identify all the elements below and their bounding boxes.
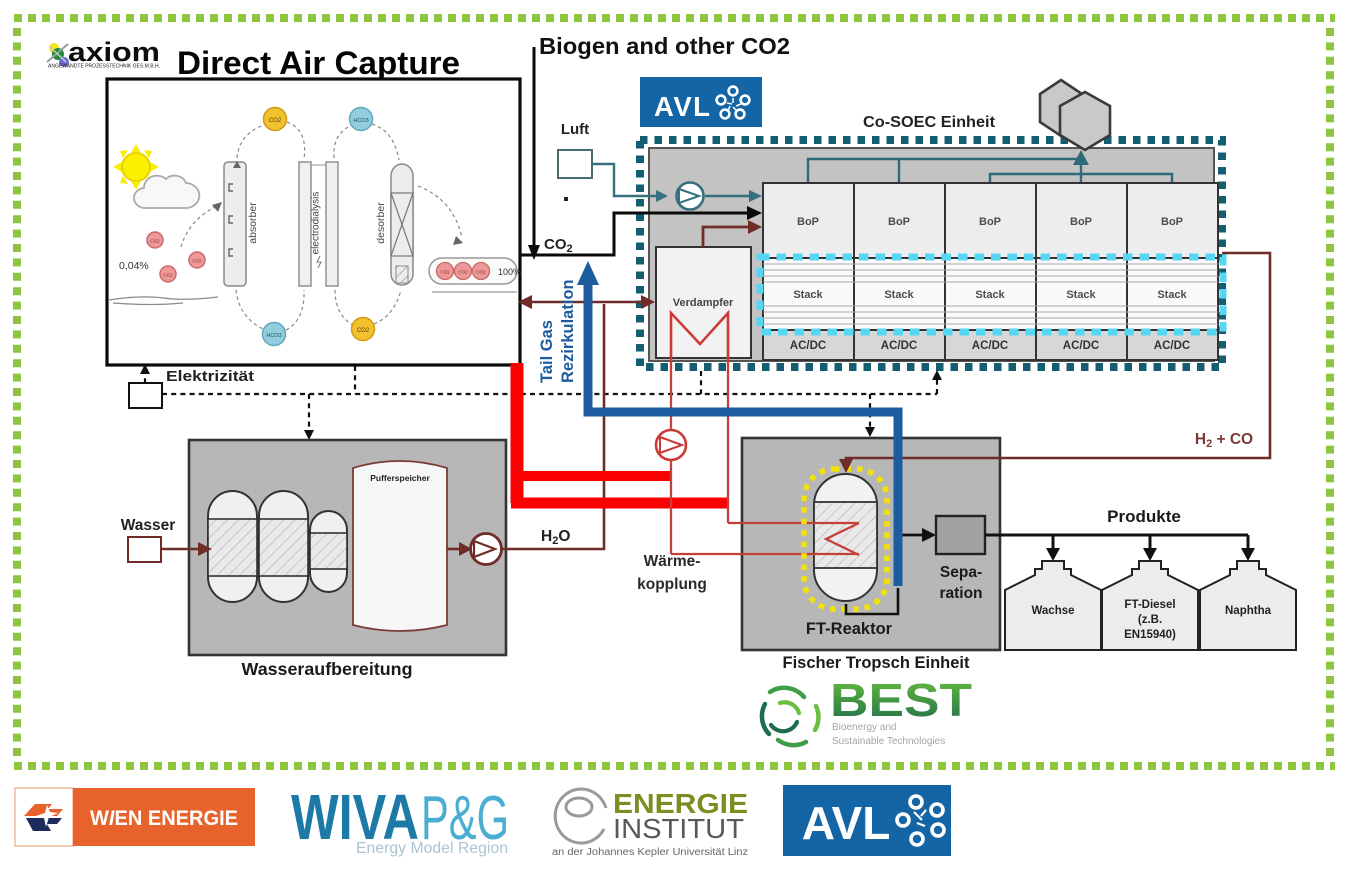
svg-text:INSTITUT: INSTITUT xyxy=(613,813,744,844)
svg-text:HCO3: HCO3 xyxy=(353,118,368,124)
svg-text:WIEN ENERGIE: WIEN ENERGIE xyxy=(90,807,238,830)
svg-text:ration: ration xyxy=(939,585,982,602)
svg-text:ANGEWANDTE PROZESSTECHNIK GES.: ANGEWANDTE PROZESSTECHNIK GES.M.B.H. xyxy=(48,64,160,70)
svg-text:CO2: CO2 xyxy=(269,118,282,124)
svg-text:Produkte: Produkte xyxy=(1107,507,1181,526)
svg-text:Stack: Stack xyxy=(1066,289,1096,301)
svg-text:Wasseraufbereitung: Wasseraufbereitung xyxy=(242,659,413,679)
svg-text:FT-Diesel: FT-Diesel xyxy=(1124,599,1175,611)
svg-text:Wärme-: Wärme- xyxy=(644,553,701,570)
svg-text:Naphtha: Naphtha xyxy=(1225,605,1272,617)
svg-text:CO2: CO2 xyxy=(163,273,173,278)
svg-text:BoP: BoP xyxy=(797,216,819,228)
svg-text:Energy Model Region: Energy Model Region xyxy=(356,840,508,857)
svg-text:AC/DC: AC/DC xyxy=(790,340,826,352)
svg-text:CO2: CO2 xyxy=(458,270,468,275)
svg-text:Rezirkulation: Rezirkulation xyxy=(559,279,577,383)
svg-text:CO2: CO2 xyxy=(150,239,160,244)
svg-text:kopplung: kopplung xyxy=(637,576,707,593)
svg-text:CO2: CO2 xyxy=(192,259,202,264)
svg-text:Stack: Stack xyxy=(1157,289,1187,301)
svg-text:Biogen and other CO2: Biogen and other CO2 xyxy=(539,33,790,59)
svg-text:AC/DC: AC/DC xyxy=(1154,340,1190,352)
svg-text:axiom: axiom xyxy=(68,37,160,67)
svg-text:BoP: BoP xyxy=(1070,216,1092,228)
svg-text:Wasser: Wasser xyxy=(121,517,176,534)
svg-text:Stack: Stack xyxy=(793,289,823,301)
svg-text:absorber: absorber xyxy=(247,202,259,244)
svg-text:CO2: CO2 xyxy=(476,270,486,275)
svg-text:Luft: Luft xyxy=(561,121,589,138)
svg-text:Stack: Stack xyxy=(975,289,1005,301)
svg-text:AVL: AVL xyxy=(654,91,711,122)
svg-text:BoP: BoP xyxy=(888,216,910,228)
svg-text:Co-SOEC Einheit: Co-SOEC Einheit xyxy=(863,114,995,131)
svg-text:CO2: CO2 xyxy=(357,328,370,334)
svg-text:Pufferspeicher: Pufferspeicher xyxy=(370,473,430,483)
svg-text:H2 + CO: H2 + CO xyxy=(1195,431,1253,450)
svg-text:Verdampfer: Verdampfer xyxy=(673,297,734,309)
svg-text:Stack: Stack xyxy=(884,289,914,301)
svg-text:BEST: BEST xyxy=(830,674,972,726)
svg-text:AC/DC: AC/DC xyxy=(881,340,917,352)
svg-text:(z.B.: (z.B. xyxy=(1138,614,1162,626)
svg-text:Bioenergy and: Bioenergy and xyxy=(832,722,897,733)
svg-text:Direct Air Capture: Direct Air Capture xyxy=(177,45,460,81)
svg-text:Sepa-: Sepa- xyxy=(940,564,982,581)
svg-text:EN15940): EN15940) xyxy=(1124,629,1176,641)
svg-text:an der Johannes Kepler Univers: an der Johannes Kepler Universität Linz xyxy=(552,847,748,858)
svg-text:AC/DC: AC/DC xyxy=(972,340,1008,352)
svg-text:100%: 100% xyxy=(498,267,521,277)
svg-text:0,04%: 0,04% xyxy=(119,260,149,272)
svg-text:Tail Gas: Tail Gas xyxy=(538,320,556,383)
svg-text:FT-Reaktor: FT-Reaktor xyxy=(806,620,893,638)
svg-text:HCO3: HCO3 xyxy=(266,333,281,339)
svg-text:Fischer Tropsch Einheit: Fischer Tropsch Einheit xyxy=(783,654,971,672)
svg-text:CO2: CO2 xyxy=(440,270,450,275)
svg-text:Elektrizität: Elektrizität xyxy=(166,368,254,385)
svg-text:BoP: BoP xyxy=(1161,216,1183,228)
svg-text:AVL: AVL xyxy=(802,797,891,849)
svg-text:AC/DC: AC/DC xyxy=(1063,340,1099,352)
svg-text:Wachse: Wachse xyxy=(1031,605,1074,617)
svg-text:electrodialysis: electrodialysis xyxy=(311,192,322,255)
svg-text:desorber: desorber xyxy=(375,202,387,244)
svg-text:BoP: BoP xyxy=(979,216,1001,228)
svg-text:Sustainable Technologies: Sustainable Technologies xyxy=(832,736,945,747)
